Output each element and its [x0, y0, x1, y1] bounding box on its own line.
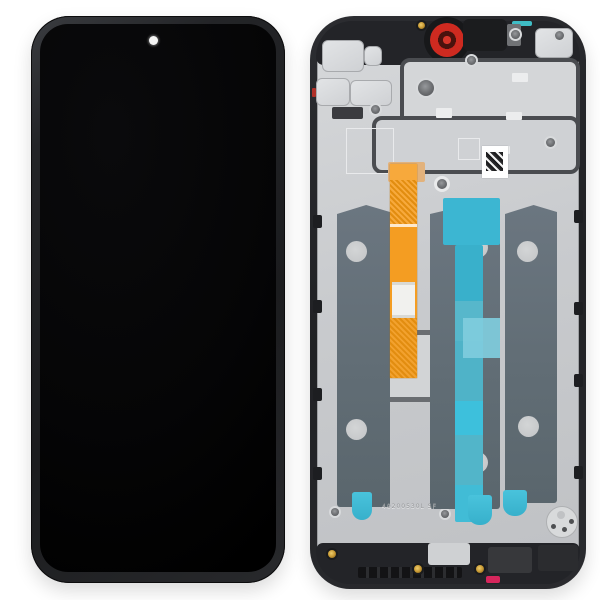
gold-screw [414, 565, 422, 573]
adhesive-pull-tab [468, 495, 492, 525]
adhesive-pull-tab [503, 490, 527, 516]
punch-hole-camera [149, 36, 158, 45]
panel-hole [518, 416, 539, 437]
display-screen [40, 24, 276, 572]
earpiece-speaker-box [463, 19, 507, 51]
shield-can [535, 28, 573, 58]
warranty-seal-sticker [486, 576, 500, 583]
shield-can [364, 46, 382, 66]
edge-clip [574, 302, 583, 315]
edge-clip [313, 467, 322, 480]
flex-cable-traces [390, 180, 417, 226]
speaker-disc-hole [562, 527, 567, 532]
bottom-metal-tab [428, 543, 470, 565]
screw [555, 31, 564, 40]
adhesive-film-pale-band [463, 318, 500, 358]
panel-hole [517, 241, 538, 262]
shield-can [322, 40, 364, 72]
tape-patch [436, 108, 452, 118]
rear-frame-assembly: 40200530L SF [310, 16, 586, 589]
shield-can [316, 78, 350, 106]
adhesive-film-top [443, 198, 500, 245]
qr-code-label [482, 146, 508, 178]
edge-clip [574, 374, 583, 387]
etched-outline [346, 128, 394, 174]
engraved-part-number: 40200530L SF [382, 503, 437, 510]
speaker-disc-hole [551, 524, 556, 529]
screw [511, 30, 520, 39]
flex-cable-traces [390, 318, 417, 378]
screw [467, 56, 476, 65]
flex-cable-fold-line [390, 224, 417, 227]
camera-lens-ring [430, 23, 464, 57]
speaker-disc-hole [557, 511, 565, 519]
tape-patch [512, 73, 528, 82]
flex-cable-segment [390, 164, 417, 180]
adhesive-pull-tab [352, 492, 372, 520]
tape-patch [506, 112, 522, 120]
gold-screw [476, 565, 484, 573]
panel-hole [346, 419, 367, 440]
screw [441, 510, 449, 518]
component-block [332, 107, 363, 119]
panel-hole [346, 241, 367, 262]
flex-cable-label [392, 282, 415, 318]
qr-code-pattern [486, 152, 503, 171]
shield-can [350, 80, 392, 106]
charging-port-block [488, 547, 532, 573]
flex-cable [390, 164, 417, 378]
product-photo: 40200530L SF [0, 0, 600, 600]
edge-clip [313, 300, 322, 313]
speaker-disc [546, 506, 578, 538]
gold-screw [418, 22, 425, 29]
adhesive-film-strip [455, 245, 483, 522]
screw [331, 508, 339, 516]
bottom-corner-piece [538, 545, 578, 571]
front-assembly [31, 16, 285, 583]
screw [418, 80, 434, 96]
side-button-seal [312, 88, 316, 97]
screw [437, 179, 447, 189]
screw [371, 105, 380, 114]
ribbed-antenna-strip [358, 567, 462, 578]
etched-outline [458, 138, 480, 160]
screw [546, 138, 555, 147]
speaker-disc-hole [569, 519, 574, 524]
edge-clip [313, 215, 322, 228]
edge-clip [574, 210, 583, 223]
gold-screw [328, 550, 336, 558]
edge-clip [574, 466, 583, 479]
edge-clip [313, 388, 322, 401]
